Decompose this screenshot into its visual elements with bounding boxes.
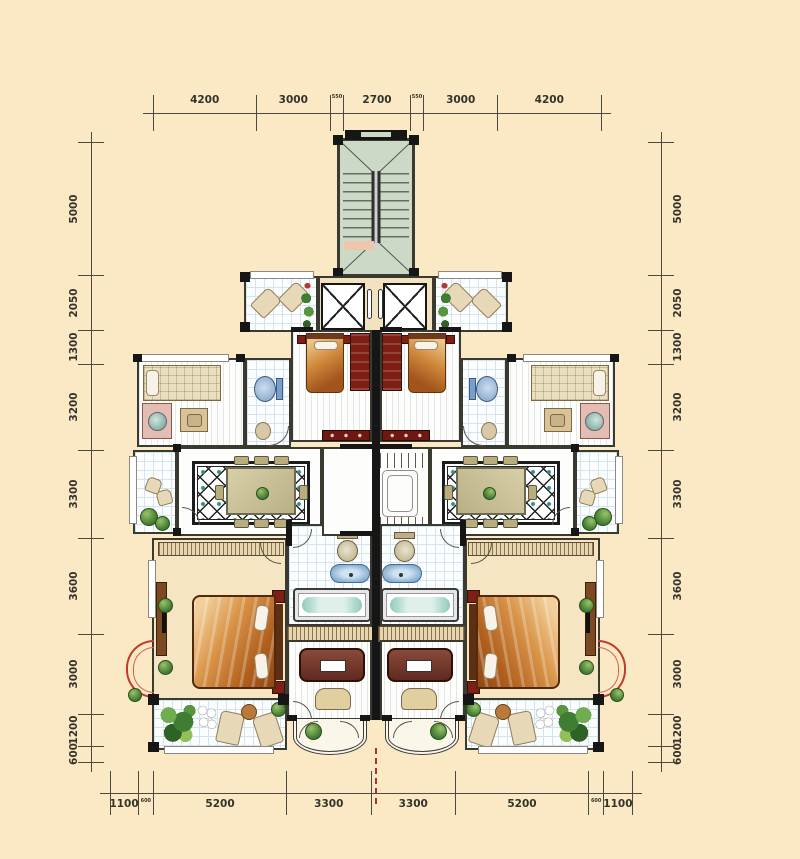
ruler-tick xyxy=(648,714,674,715)
dim-label-top-3: 2700 xyxy=(362,94,391,106)
ruler-tick xyxy=(588,771,589,815)
dim-label-bottom-4: 3300 xyxy=(399,798,428,810)
ruler-tick xyxy=(78,364,104,365)
dim-label-bottom-3: 3300 xyxy=(314,798,343,810)
dim-label-top-0: 4200 xyxy=(190,94,219,106)
dim-label-left-6: 3000 xyxy=(68,659,80,688)
ruler-tick xyxy=(78,714,104,715)
ruler-tick xyxy=(423,95,424,131)
ruler-tick xyxy=(497,95,498,131)
ruler-tick xyxy=(78,450,104,451)
ruler-tick xyxy=(78,746,104,747)
dim-label-bottom-7: 1100 xyxy=(603,798,632,810)
ruler-tick xyxy=(648,762,674,763)
ruler-tick xyxy=(648,275,674,276)
ruler-tick xyxy=(343,95,344,131)
dim-label-left-3: 3200 xyxy=(68,393,80,422)
ruler-tick xyxy=(648,538,674,539)
floorplan-canvas: 4200300055027005503000420011006005200330… xyxy=(0,0,800,859)
ruler-tick xyxy=(648,634,674,635)
dim-label-top-2: 550 xyxy=(332,94,342,100)
dim-label-right-2: 1300 xyxy=(672,333,684,362)
dim-label-bottom-0: 1100 xyxy=(109,798,138,810)
ruler-tick xyxy=(78,762,104,763)
ruler-tick xyxy=(153,95,154,131)
ruler-tick xyxy=(455,771,456,815)
dim-label-right-6: 3000 xyxy=(672,659,684,688)
ruler-tick xyxy=(330,95,331,131)
ruler-tick xyxy=(648,364,674,365)
dimension-rulers: 4200300055027005503000420011006005200330… xyxy=(0,0,800,859)
dim-label-left-2: 1300 xyxy=(68,333,80,362)
dim-label-top-4: 550 xyxy=(412,94,422,100)
ruler-line-left xyxy=(91,132,92,772)
dim-label-left-5: 3600 xyxy=(68,571,80,600)
ruler-tick xyxy=(78,275,104,276)
ruler-tick xyxy=(648,746,674,747)
dim-label-top-6: 4200 xyxy=(535,94,564,106)
dim-label-bottom-6: 600 xyxy=(591,798,601,804)
dim-label-bottom-1: 600 xyxy=(141,798,151,804)
dim-label-top-5: 3000 xyxy=(446,94,475,106)
ruler-tick xyxy=(601,95,602,131)
dim-label-bottom-2: 5200 xyxy=(205,798,234,810)
ruler-tick xyxy=(648,450,674,451)
ruler-tick xyxy=(78,142,104,143)
dim-label-left-7: 1200 xyxy=(68,715,80,744)
dim-label-top-1: 3000 xyxy=(279,94,308,106)
ruler-tick xyxy=(648,142,674,143)
dim-label-left-0: 5000 xyxy=(68,194,80,223)
dim-label-right-4: 3300 xyxy=(672,479,684,508)
dim-label-left-4: 3300 xyxy=(68,479,80,508)
dim-label-right-1: 2050 xyxy=(672,288,684,317)
ruler-line-right xyxy=(661,132,662,772)
dim-label-bottom-5: 5200 xyxy=(507,798,536,810)
ruler-tick xyxy=(286,771,287,815)
ruler-tick xyxy=(153,771,154,815)
ruler-tick xyxy=(371,771,372,815)
dim-label-left-1: 2050 xyxy=(68,288,80,317)
dim-label-right-0: 5000 xyxy=(672,194,684,223)
ruler-tick xyxy=(648,330,674,331)
dim-label-right-7: 1200 xyxy=(672,715,684,744)
dim-label-right-8: 600 xyxy=(672,743,684,765)
ruler-tick xyxy=(78,330,104,331)
dim-label-right-5: 3600 xyxy=(672,571,684,600)
dim-label-left-8: 600 xyxy=(68,743,80,765)
dim-label-right-3: 3200 xyxy=(672,393,684,422)
ruler-tick xyxy=(78,634,104,635)
ruler-tick xyxy=(410,95,411,131)
ruler-line-top xyxy=(143,113,611,114)
ruler-tick xyxy=(78,538,104,539)
ruler-tick xyxy=(256,95,257,131)
